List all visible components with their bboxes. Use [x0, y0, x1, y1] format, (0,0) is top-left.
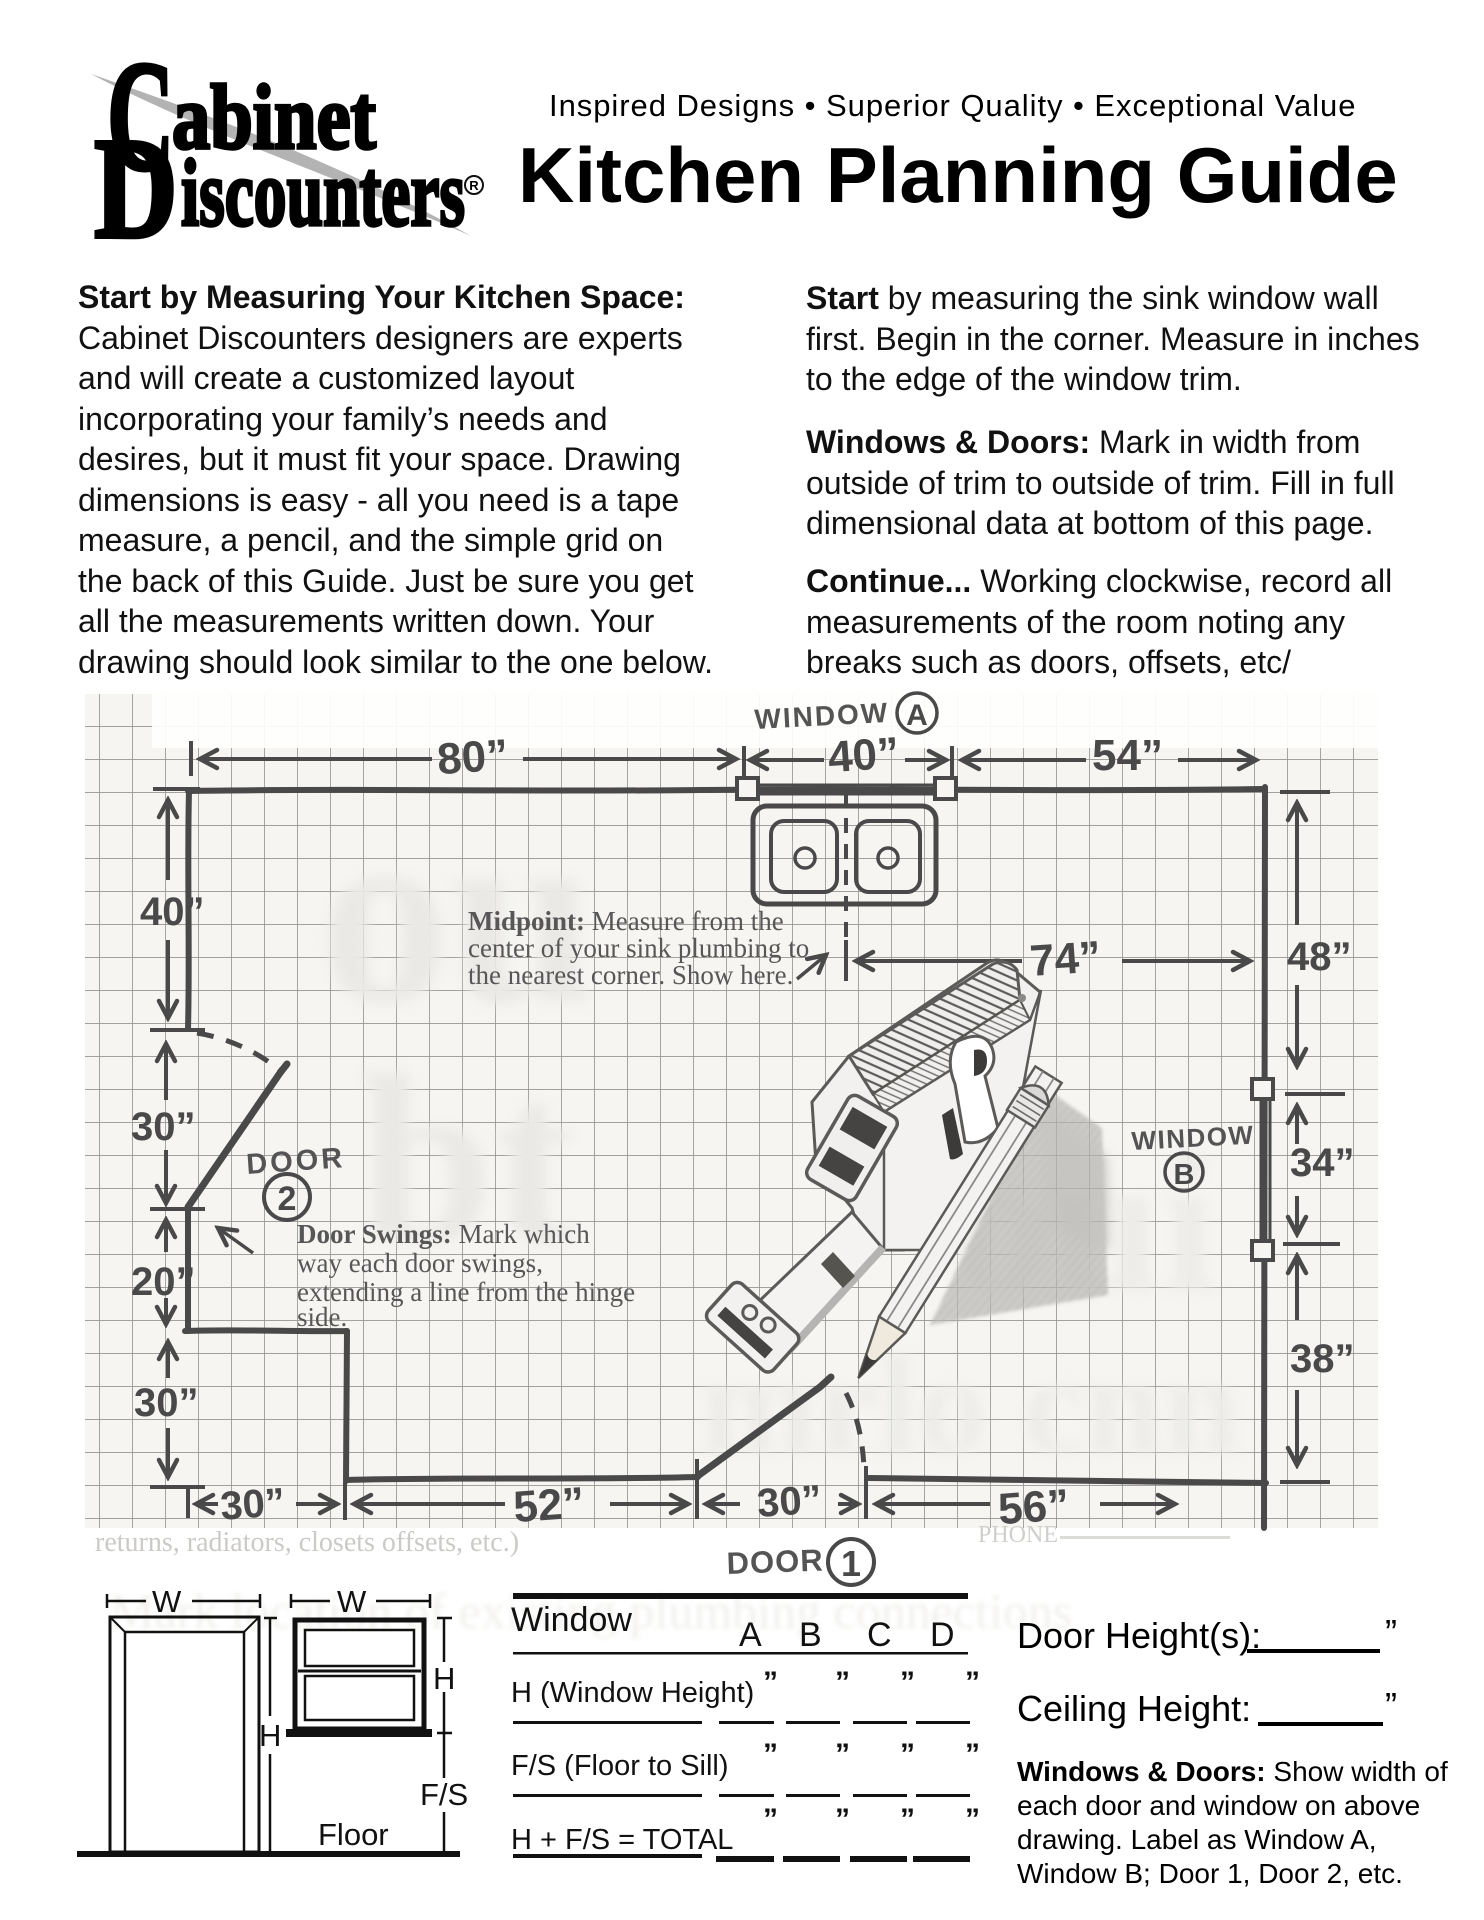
svg-text:52”: 52”: [512, 1478, 586, 1532]
svg-text:30”: 30”: [134, 1381, 199, 1425]
svg-text:30”: 30”: [219, 1480, 286, 1528]
svg-text:74”: 74”: [1028, 932, 1102, 986]
svg-text:A: A: [739, 1616, 762, 1654]
svg-text:iscounters: iscounters: [181, 140, 465, 246]
svg-text:1: 1: [841, 1543, 861, 1584]
svg-text:”: ”: [900, 1666, 915, 1699]
svg-text:”: ”: [965, 1666, 980, 1699]
svg-text:”: ”: [900, 1803, 915, 1836]
svg-text:B: B: [799, 1616, 822, 1654]
svg-text:W: W: [152, 1584, 182, 1619]
svg-text:H: H: [433, 1661, 455, 1696]
svg-text:A: A: [906, 699, 928, 732]
svg-text:80”: 80”: [436, 730, 510, 784]
svg-text:W: W: [337, 1584, 367, 1619]
svg-text:the nearest corner. Show here.: the nearest corner. Show here.: [468, 960, 793, 990]
svg-text:returns, radiators, closets of: returns, radiators, closets offsets, etc…: [95, 1527, 519, 1558]
svg-text:extending a line from the hing: extending a line from the hinge: [297, 1277, 635, 1307]
svg-text:”: ”: [835, 1803, 850, 1836]
svg-text:Door Swings: Mark which: Door Swings: Mark which: [297, 1219, 590, 1249]
svg-text:Floor: Floor: [318, 1817, 389, 1852]
svg-text:”: ”: [900, 1738, 915, 1771]
svg-text:20”: 20”: [131, 1260, 196, 1304]
svg-text:B: B: [1174, 1159, 1195, 1191]
svg-text:H (Window Height): H (Window Height): [511, 1677, 754, 1709]
svg-text:54”: 54”: [1092, 731, 1163, 780]
svg-text:30”: 30”: [131, 1105, 196, 1149]
svg-text:side.: side.: [297, 1302, 347, 1332]
svg-text:”: ”: [763, 1738, 778, 1771]
svg-text:2: 2: [278, 1180, 297, 1218]
svg-text:”: ”: [965, 1803, 980, 1836]
svg-text:34”: 34”: [1290, 1141, 1355, 1185]
svg-text:Window: Window: [511, 1601, 632, 1639]
svg-text:DOOR: DOOR: [726, 1543, 824, 1581]
svg-text:”: ”: [835, 1666, 850, 1699]
svg-text:C: C: [867, 1616, 892, 1654]
svg-text:56”: 56”: [997, 1480, 1071, 1534]
svg-text:F/S (Floor to Sill): F/S (Floor to Sill): [511, 1750, 729, 1782]
svg-text:H: H: [259, 1718, 281, 1753]
svg-text:D: D: [94, 109, 178, 260]
svg-text:Midpoint: Measure from the: Midpoint: Measure from the: [468, 906, 784, 936]
svg-text:”: ”: [835, 1738, 850, 1771]
svg-text:38”: 38”: [1290, 1337, 1355, 1381]
svg-text:H + F/S = TOTAL: H + F/S = TOTAL: [511, 1824, 733, 1856]
svg-text:D: D: [930, 1616, 955, 1654]
svg-text:way each door swings,: way each door swings,: [297, 1248, 543, 1278]
svg-text:30”: 30”: [756, 1477, 823, 1525]
svg-text:F/S: F/S: [420, 1777, 468, 1812]
svg-text:40”: 40”: [140, 890, 205, 934]
svg-text:”: ”: [763, 1666, 778, 1699]
svg-text:40”: 40”: [826, 728, 900, 782]
svg-text:48”: 48”: [1287, 935, 1352, 979]
svg-text:”: ”: [763, 1803, 778, 1836]
svg-text:center of your sink plumbing t: center of your sink plumbing to: [468, 933, 809, 963]
svg-text:”: ”: [965, 1738, 980, 1771]
svg-text:R: R: [469, 178, 479, 193]
